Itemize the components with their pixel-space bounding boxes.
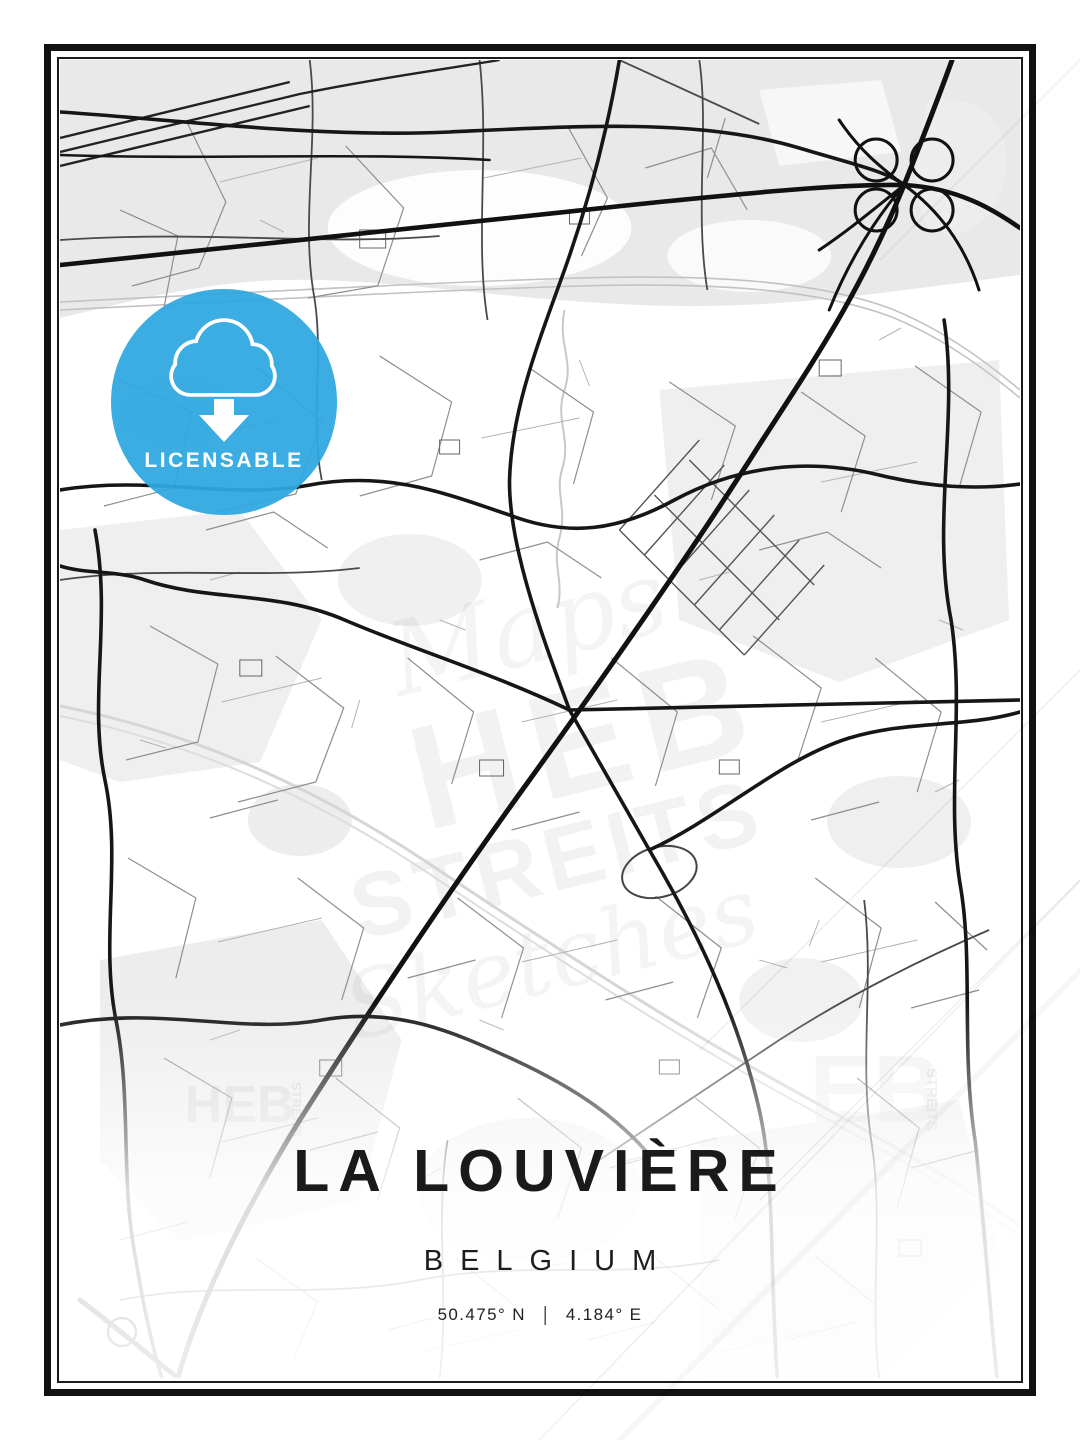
title-block: LA LOUVIÈRE BELGIUM 50.475° N | 4.184° E bbox=[60, 1142, 1020, 1325]
cloud-download-icon bbox=[111, 289, 337, 515]
coordinates: 50.475° N | 4.184° E bbox=[60, 1305, 1020, 1325]
latitude-value: 50.475° N bbox=[438, 1305, 526, 1325]
coordinate-separator: | bbox=[543, 1303, 549, 1327]
country-label: BELGIUM bbox=[60, 1245, 1020, 1278]
city-title: LA LOUVIÈRE bbox=[60, 1142, 1020, 1201]
poster-canvas: Maps HEB STREITS Sketches HEB STREITS EB… bbox=[0, 0, 1080, 1440]
download-arrow-icon bbox=[199, 399, 249, 442]
licensable-badge: LICENSABLE bbox=[111, 289, 337, 515]
badge-label: LICENSABLE bbox=[111, 449, 337, 473]
longitude-value: 4.184° E bbox=[566, 1305, 643, 1325]
